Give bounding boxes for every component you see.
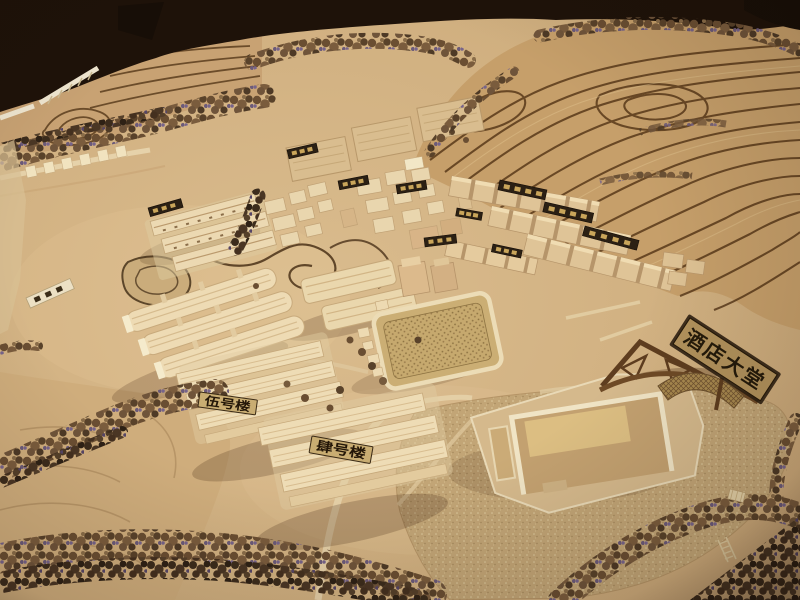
model-photo: 酒店大堂 伍号楼 肆号楼: [0, 0, 800, 600]
vignette-overlay: [0, 0, 800, 600]
model-scene: 酒店大堂 伍号楼 肆号楼: [0, 0, 800, 600]
